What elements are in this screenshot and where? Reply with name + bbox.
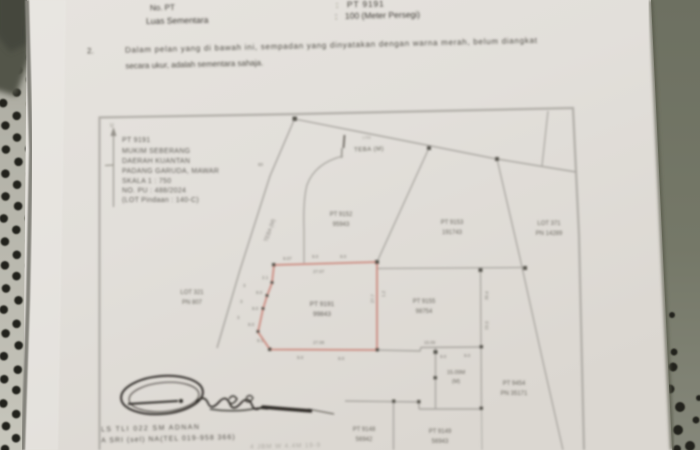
svg-text:9.0: 9.0 <box>464 353 471 358</box>
svg-text:99843: 99843 <box>313 311 331 318</box>
svg-text:No. PT: No. PT <box>150 3 175 13</box>
svg-text:Luas Sementara: Luas Sementara <box>146 15 209 26</box>
svg-text:LOT 321: LOT 321 <box>180 290 204 296</box>
svg-text:4 JBM W 4.4M 19-9: 4 JBM W 4.4M 19-9 <box>250 442 321 450</box>
svg-text:27.08: 27.08 <box>313 340 325 345</box>
svg-text:PN 35171: PN 35171 <box>501 391 528 397</box>
svg-text:56943: 56943 <box>432 439 449 445</box>
svg-text:SKALA 1 : 750: SKALA 1 : 750 <box>122 178 171 185</box>
svg-text:NO. PU : 488/2024: NO. PU : 488/2024 <box>122 188 186 195</box>
svg-text:2.1: 2.1 <box>262 275 269 280</box>
svg-text:27.7: 27.7 <box>370 294 375 303</box>
svg-text:9.1: 9.1 <box>257 338 264 343</box>
svg-text:15.09M: 15.09M <box>447 370 466 376</box>
svg-text:191743: 191743 <box>442 230 463 236</box>
svg-text:PT 9148: PT 9148 <box>353 427 376 433</box>
svg-text:98754: 98754 <box>416 309 433 315</box>
svg-text:PT 9191: PT 9191 <box>347 0 385 9</box>
svg-text:8.0: 8.0 <box>256 290 263 295</box>
svg-text:8.0: 8.0 <box>248 322 255 327</box>
svg-text:9.0: 9.0 <box>312 254 319 259</box>
svg-text:27.07: 27.07 <box>313 269 325 274</box>
svg-text:9.0: 9.0 <box>340 254 347 259</box>
svg-text:60: 60 <box>258 162 264 167</box>
svg-text:PN 14289: PN 14289 <box>536 231 563 237</box>
svg-text:30.4: 30.4 <box>484 291 490 301</box>
svg-text:PT 9152: PT 9152 <box>330 212 353 218</box>
svg-text:PT 9191: PT 9191 <box>122 137 150 144</box>
svg-text:2.: 2. <box>87 46 94 55</box>
svg-text:PADANG GARUDA, MAWAR: PADANG GARUDA, MAWAR <box>122 168 219 175</box>
svg-text:100 (Meter Persegi): 100 (Meter Persegi) <box>345 9 420 21</box>
svg-text:U: U <box>110 123 114 129</box>
svg-text:PT 9149: PT 9149 <box>429 429 452 435</box>
svg-text:15.09: 15.09 <box>424 340 436 345</box>
svg-text:9.07: 9.07 <box>283 256 292 261</box>
svg-text:PT 9454: PT 9454 <box>503 381 526 387</box>
svg-text::: : <box>335 11 338 21</box>
svg-text:MUKIM SEBERANG: MUKIM SEBERANG <box>122 148 190 155</box>
svg-text:PN 807: PN 807 <box>182 300 203 306</box>
svg-text:1.2: 1.2 <box>381 290 386 297</box>
svg-text:DAERAH KUANTAN: DAERAH KUANTAN <box>122 158 190 165</box>
svg-text:9.0: 9.0 <box>440 354 447 359</box>
svg-text:LOT 371: LOT 371 <box>537 221 561 227</box>
svg-text:9.0: 9.0 <box>338 356 345 361</box>
svg-text:PT 9153: PT 9153 <box>441 220 464 226</box>
svg-text:1700: 1700 <box>362 135 372 140</box>
svg-text:8.0: 8.0 <box>252 306 259 311</box>
svg-text:95943: 95943 <box>333 222 350 228</box>
svg-text:15.0: 15.0 <box>484 321 490 331</box>
svg-text:(LOT Pindaan : 140-C): (LOT Pindaan : 140-C) <box>122 197 199 204</box>
svg-text:(M): (M) <box>452 379 460 385</box>
svg-text:56942: 56942 <box>356 437 373 443</box>
svg-text:9.0: 9.0 <box>297 355 304 360</box>
svg-text::: : <box>336 1 338 10</box>
svg-text:TEBA (M): TEBA (M) <box>354 146 384 153</box>
svg-text:PT 9191: PT 9191 <box>310 301 335 308</box>
svg-text:PT 9155: PT 9155 <box>413 299 436 305</box>
